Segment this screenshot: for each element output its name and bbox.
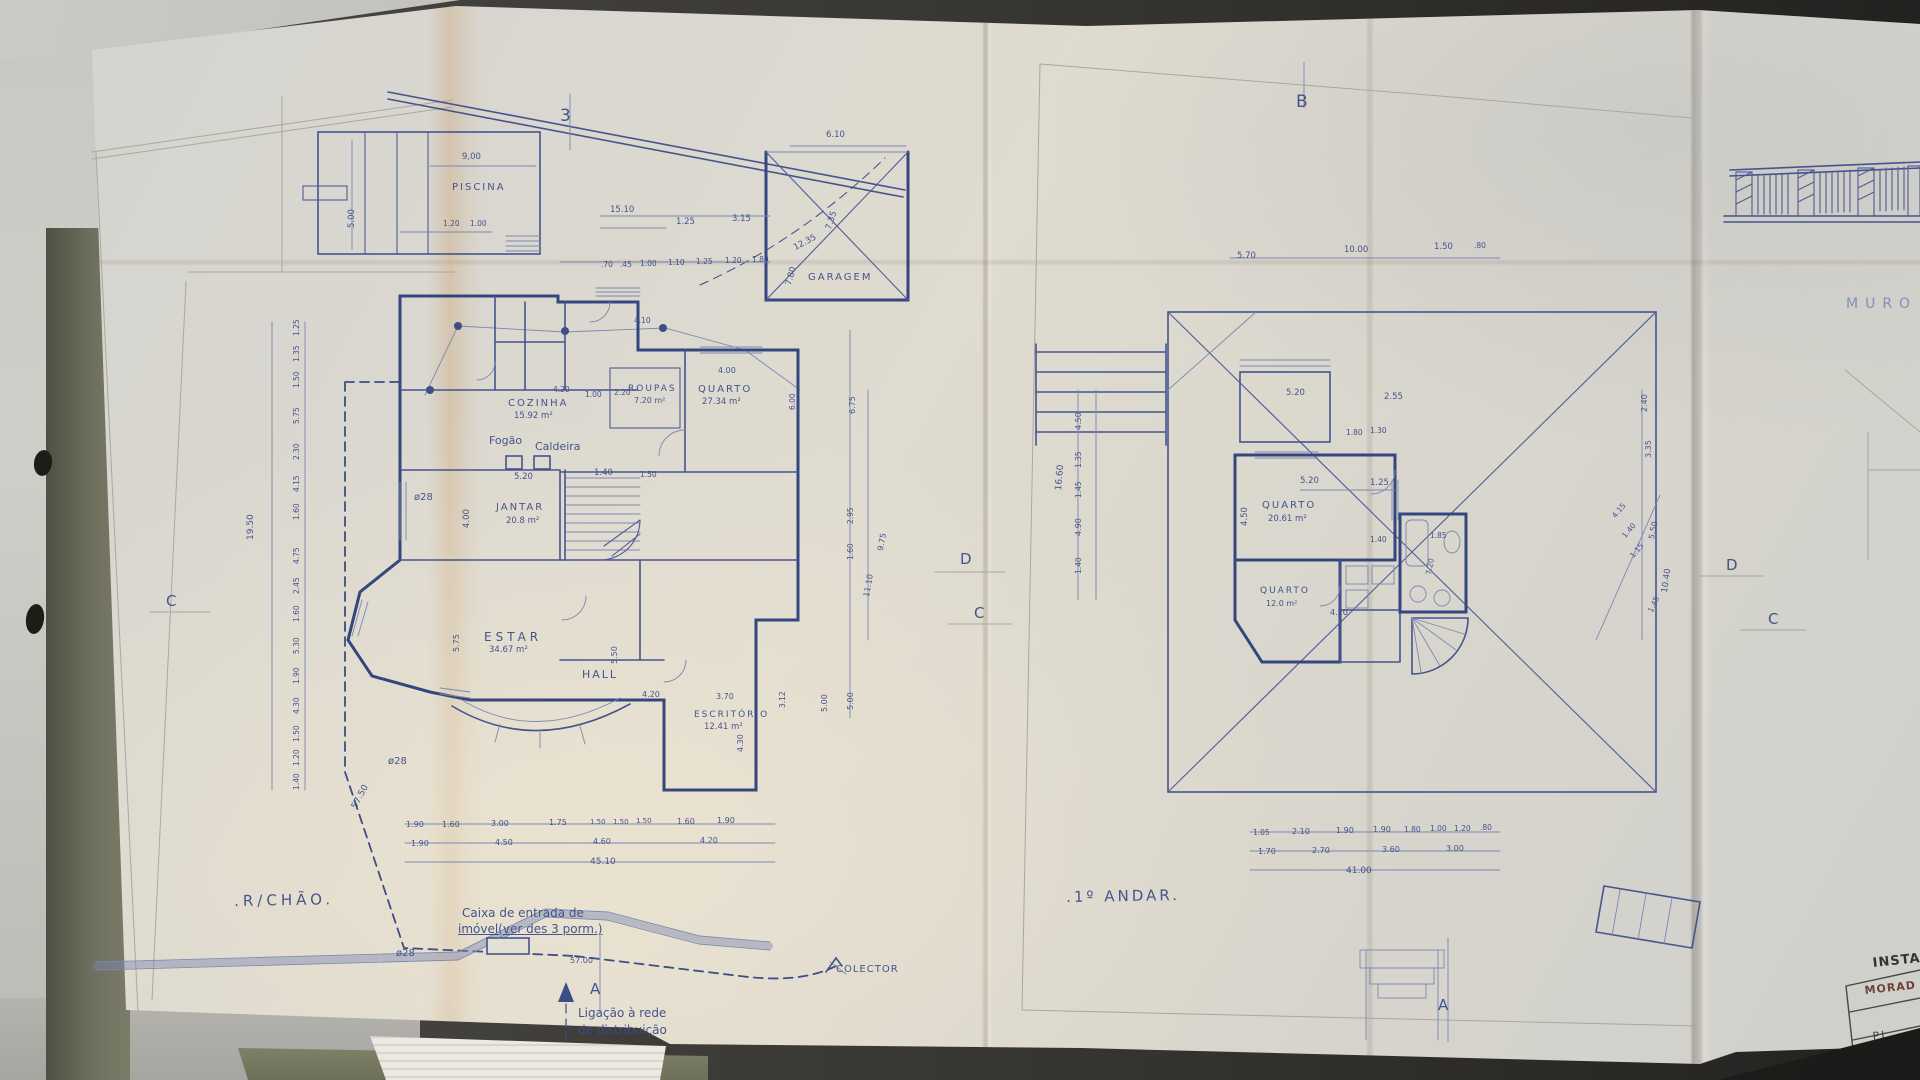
section-marker: A [590, 980, 601, 998]
dimension-label: 1.35 [1074, 451, 1083, 468]
dimension-label: 4.50 [1240, 507, 1250, 526]
dimension-label: 1.15 [1628, 541, 1646, 560]
dimension-label: 1.30 [1370, 426, 1387, 435]
room-area-label: 7.20 m² [634, 396, 665, 405]
dimension-label: 16.60 [1054, 464, 1066, 491]
dimension-label: 2.55 [1384, 392, 1403, 402]
dimension-label: 2.45 [292, 577, 301, 594]
dimension-label: 9,00 [462, 152, 481, 162]
dimension-label: 4.60 [593, 837, 611, 846]
section-marker: C [974, 604, 985, 622]
dimension-label: 2.40 [1640, 394, 1649, 412]
dimension-label: 1.00 [470, 219, 487, 228]
annotation-label: ø28 [414, 492, 433, 503]
room-area-label: 12.0 m² [1266, 599, 1297, 608]
dimension-label: 4.00 [718, 366, 736, 375]
annotation-label: Caldeira [535, 440, 581, 453]
room-area-label: 27.34 m² [702, 397, 741, 407]
dimension-label: 1.80 [1404, 825, 1421, 834]
dimension-label: 6.00 [788, 393, 797, 410]
dimension-label: 1.85 [1430, 531, 1447, 540]
dimension-label: 12.35 [792, 233, 818, 253]
room-label: QUARTO [698, 384, 752, 395]
dimension-label: 4.15 [292, 475, 301, 492]
dimension-label: 4.75 [292, 547, 301, 564]
section-marker: 3 [560, 106, 572, 126]
room-label: GARAGEM [808, 272, 873, 283]
dimension-label: 1.50 [292, 371, 301, 388]
dimension-label: 1.40 [292, 773, 301, 790]
dimension-label: 1.70 [1258, 847, 1276, 856]
ligacao-note-line1: Ligação à rede [578, 1006, 666, 1020]
dimension-label: 5.75 [292, 407, 301, 424]
dimension-label: 1.00 [585, 390, 602, 399]
annotation-label: ø28 [396, 948, 415, 959]
dimension-label: .80 [1474, 241, 1486, 250]
dimension-label: 1.90 [1336, 826, 1354, 835]
dimension-label: 1.50 [292, 725, 301, 742]
dimension-label: 7.35 [824, 210, 839, 231]
dimension-label: 57.50 [350, 783, 371, 810]
dimension-label: 5.75 [452, 634, 461, 652]
dimension-label: 5.20 [1286, 388, 1305, 398]
dimension-label: 3.00 [491, 819, 509, 828]
dimension-label: 1.50 [640, 470, 657, 479]
dimension-label: 1.40 [1370, 535, 1387, 544]
room-label: ROUPAS [628, 384, 677, 394]
dimension-label: 1.60 [292, 503, 301, 520]
dimension-label: 45.10 [590, 857, 616, 867]
dimension-label: 5.30 [292, 637, 301, 654]
dimension-label: 3.15 [732, 214, 751, 224]
dimension-label: 1.25 [696, 257, 713, 266]
room-area-label: 34.67 m² [489, 645, 528, 655]
dimension-label: 1.40 [594, 468, 613, 478]
dimension-label: 4.10 [634, 316, 651, 325]
dimension-label: 10.40 [1660, 568, 1673, 593]
dimension-label: 1.80 [752, 255, 769, 264]
dimension-label: 3.60 [1382, 845, 1400, 854]
dimension-label: 1.45 [1646, 595, 1661, 614]
dimension-label: 5.00 [820, 694, 829, 712]
dimension-label: 4.20 [1330, 608, 1348, 617]
dimension-label: 6.10 [826, 130, 845, 140]
photo-of-blueprint: .R/CHÃO. .1º ANDAR. Caixa de entrada de … [0, 0, 1920, 1080]
left-plan-title: .R/CHÃO. [234, 890, 334, 910]
dimension-label: 4.20 [642, 690, 660, 699]
dimension-label: 1.25 [292, 319, 301, 336]
dimension-label: .70 [601, 260, 613, 269]
dimension-label: 2.10 [1292, 827, 1310, 836]
muro-label: MURO [1846, 296, 1917, 312]
dimension-label: 5.00 [846, 692, 855, 710]
dimension-label: 4.20 [700, 836, 718, 845]
dimension-label: 1.60 [677, 817, 695, 826]
dimension-label: 1.90 [411, 839, 429, 848]
section-marker: D [960, 550, 973, 568]
room-area-label: 15.92 m² [514, 411, 553, 421]
ligacao-note-line2: de distribuição [578, 1023, 667, 1037]
dimension-label: 1.50 [1434, 242, 1453, 252]
section-marker: D [1726, 556, 1739, 574]
dimension-label: 4.90 [1074, 518, 1083, 536]
room-label: ESTAR [484, 630, 542, 644]
dimension-label: 1.20 [292, 749, 301, 766]
dimension-label: 1.60 [292, 605, 301, 622]
dimension-label: 1.25 [676, 217, 695, 227]
dimension-label: 4.00 [462, 509, 472, 528]
dimension-label: 1.50 [590, 818, 606, 826]
room-area-label: 12.41 m² [704, 722, 743, 732]
room-label: ESCRITÓRIO [694, 710, 769, 720]
room-label: QUARTO [1260, 586, 1310, 596]
dimension-label: 3.00 [1446, 844, 1464, 853]
dimension-label: 11.10 [862, 573, 875, 597]
dimension-label: 1.00 [640, 259, 657, 268]
dimension-label: 7.20 [1424, 558, 1436, 576]
annotation-label: COLECTOR [836, 964, 899, 975]
dimension-label: 5.20 [514, 472, 533, 482]
section-marker: C [166, 592, 177, 610]
dimension-label: 1.90 [1373, 825, 1391, 834]
dimension-label: 5.20 [1300, 476, 1319, 486]
dimension-label: 10.00 [1344, 245, 1368, 255]
dimension-label: 1.80 [1346, 428, 1363, 437]
annotation-label: ø28 [388, 756, 407, 767]
dimension-label: 4.30 [292, 697, 301, 714]
dimension-label: .80 [1480, 823, 1492, 832]
dimension-label: 15.10 [610, 205, 634, 215]
dimension-label: 1.40 [1620, 521, 1638, 540]
dimension-label: 5.50 [1647, 521, 1660, 540]
room-area-label: 20.8 m² [506, 516, 539, 526]
dimension-label: 1.90 [406, 820, 424, 829]
dimension-label: 1.45 [1074, 481, 1083, 498]
dimension-label: 1.00 [1430, 824, 1447, 833]
dimension-label: 4.15 [1610, 501, 1628, 520]
dimension-label: 1.40 [1074, 557, 1083, 574]
dimension-label: 1.60 [442, 820, 460, 829]
dimension-label: 2.70 [1312, 846, 1330, 855]
dimension-label: 3.70 [716, 692, 734, 701]
dimension-label: .45 [620, 260, 632, 269]
dimension-label: 2.95 [846, 507, 855, 524]
dimension-label: 1.90 [292, 667, 301, 684]
section-marker: B [1296, 92, 1309, 112]
dimension-label: 3.12 [778, 691, 787, 708]
dimension-label: 6.75 [848, 396, 857, 414]
dimension-label: 1.20 [1454, 824, 1471, 833]
titleblock-header: INSTAL [1872, 950, 1920, 971]
dimension-label: 1.75 [549, 818, 567, 827]
room-area-label: 20.61 m² [1268, 514, 1307, 524]
dimension-label: 1.35 [292, 345, 301, 362]
room-label: JANTAR [496, 502, 544, 513]
dimension-label: 1.20 [725, 256, 742, 265]
annotation-label: Fogão [489, 434, 522, 447]
dimension-label: 2.20 [614, 388, 631, 397]
dimension-label: 9.75 [876, 532, 888, 551]
label-layer: .R/CHÃO. .1º ANDAR. Caixa de entrada de … [0, 0, 1920, 1080]
dimension-label: 1.50 [613, 818, 629, 826]
dimension-label: 4.50 [1074, 412, 1083, 430]
dimension-label: 19.50 [246, 514, 256, 540]
dimension-label: 4.50 [495, 838, 513, 847]
dimension-label: 41.00 [1346, 866, 1372, 876]
section-marker: C [1768, 610, 1779, 628]
titleblock-stamp: MORAD [1864, 979, 1916, 997]
dimension-label: 1.20 [443, 219, 460, 228]
dimension-label: 57.00 [570, 956, 593, 965]
dimension-label: 1.25 [1370, 478, 1389, 488]
dimension-label: 1.05 [1253, 828, 1270, 837]
section-marker: A [1438, 996, 1449, 1014]
dimension-label: 5.00 [347, 209, 357, 228]
dimension-label: 1.10 [668, 258, 685, 267]
room-label: COZINHA [508, 398, 569, 409]
dimension-label: 5.70 [1237, 251, 1256, 261]
dimension-label: 4.30 [736, 734, 745, 752]
dimension-label: 7.80 [784, 266, 799, 287]
dimension-label: 2.30 [292, 443, 301, 460]
dimension-label: 5.50 [610, 646, 619, 664]
room-label: QUARTO [1262, 500, 1316, 511]
dimension-label: 1.60 [846, 543, 855, 560]
room-label: HALL [582, 668, 618, 681]
dimension-label: 3.35 [1644, 440, 1653, 458]
caixa-note-line1: Caixa de entrada de [462, 906, 584, 920]
dimension-label: 1.50 [636, 817, 652, 825]
room-label: PISCINA [452, 182, 506, 193]
dimension-label: 1.90 [717, 816, 735, 825]
right-plan-title: .1º ANDAR. [1066, 886, 1180, 906]
dimension-label: 4.20 [553, 385, 570, 394]
caixa-note-line2: imóvel(ver des 3 porm.) [458, 922, 602, 936]
